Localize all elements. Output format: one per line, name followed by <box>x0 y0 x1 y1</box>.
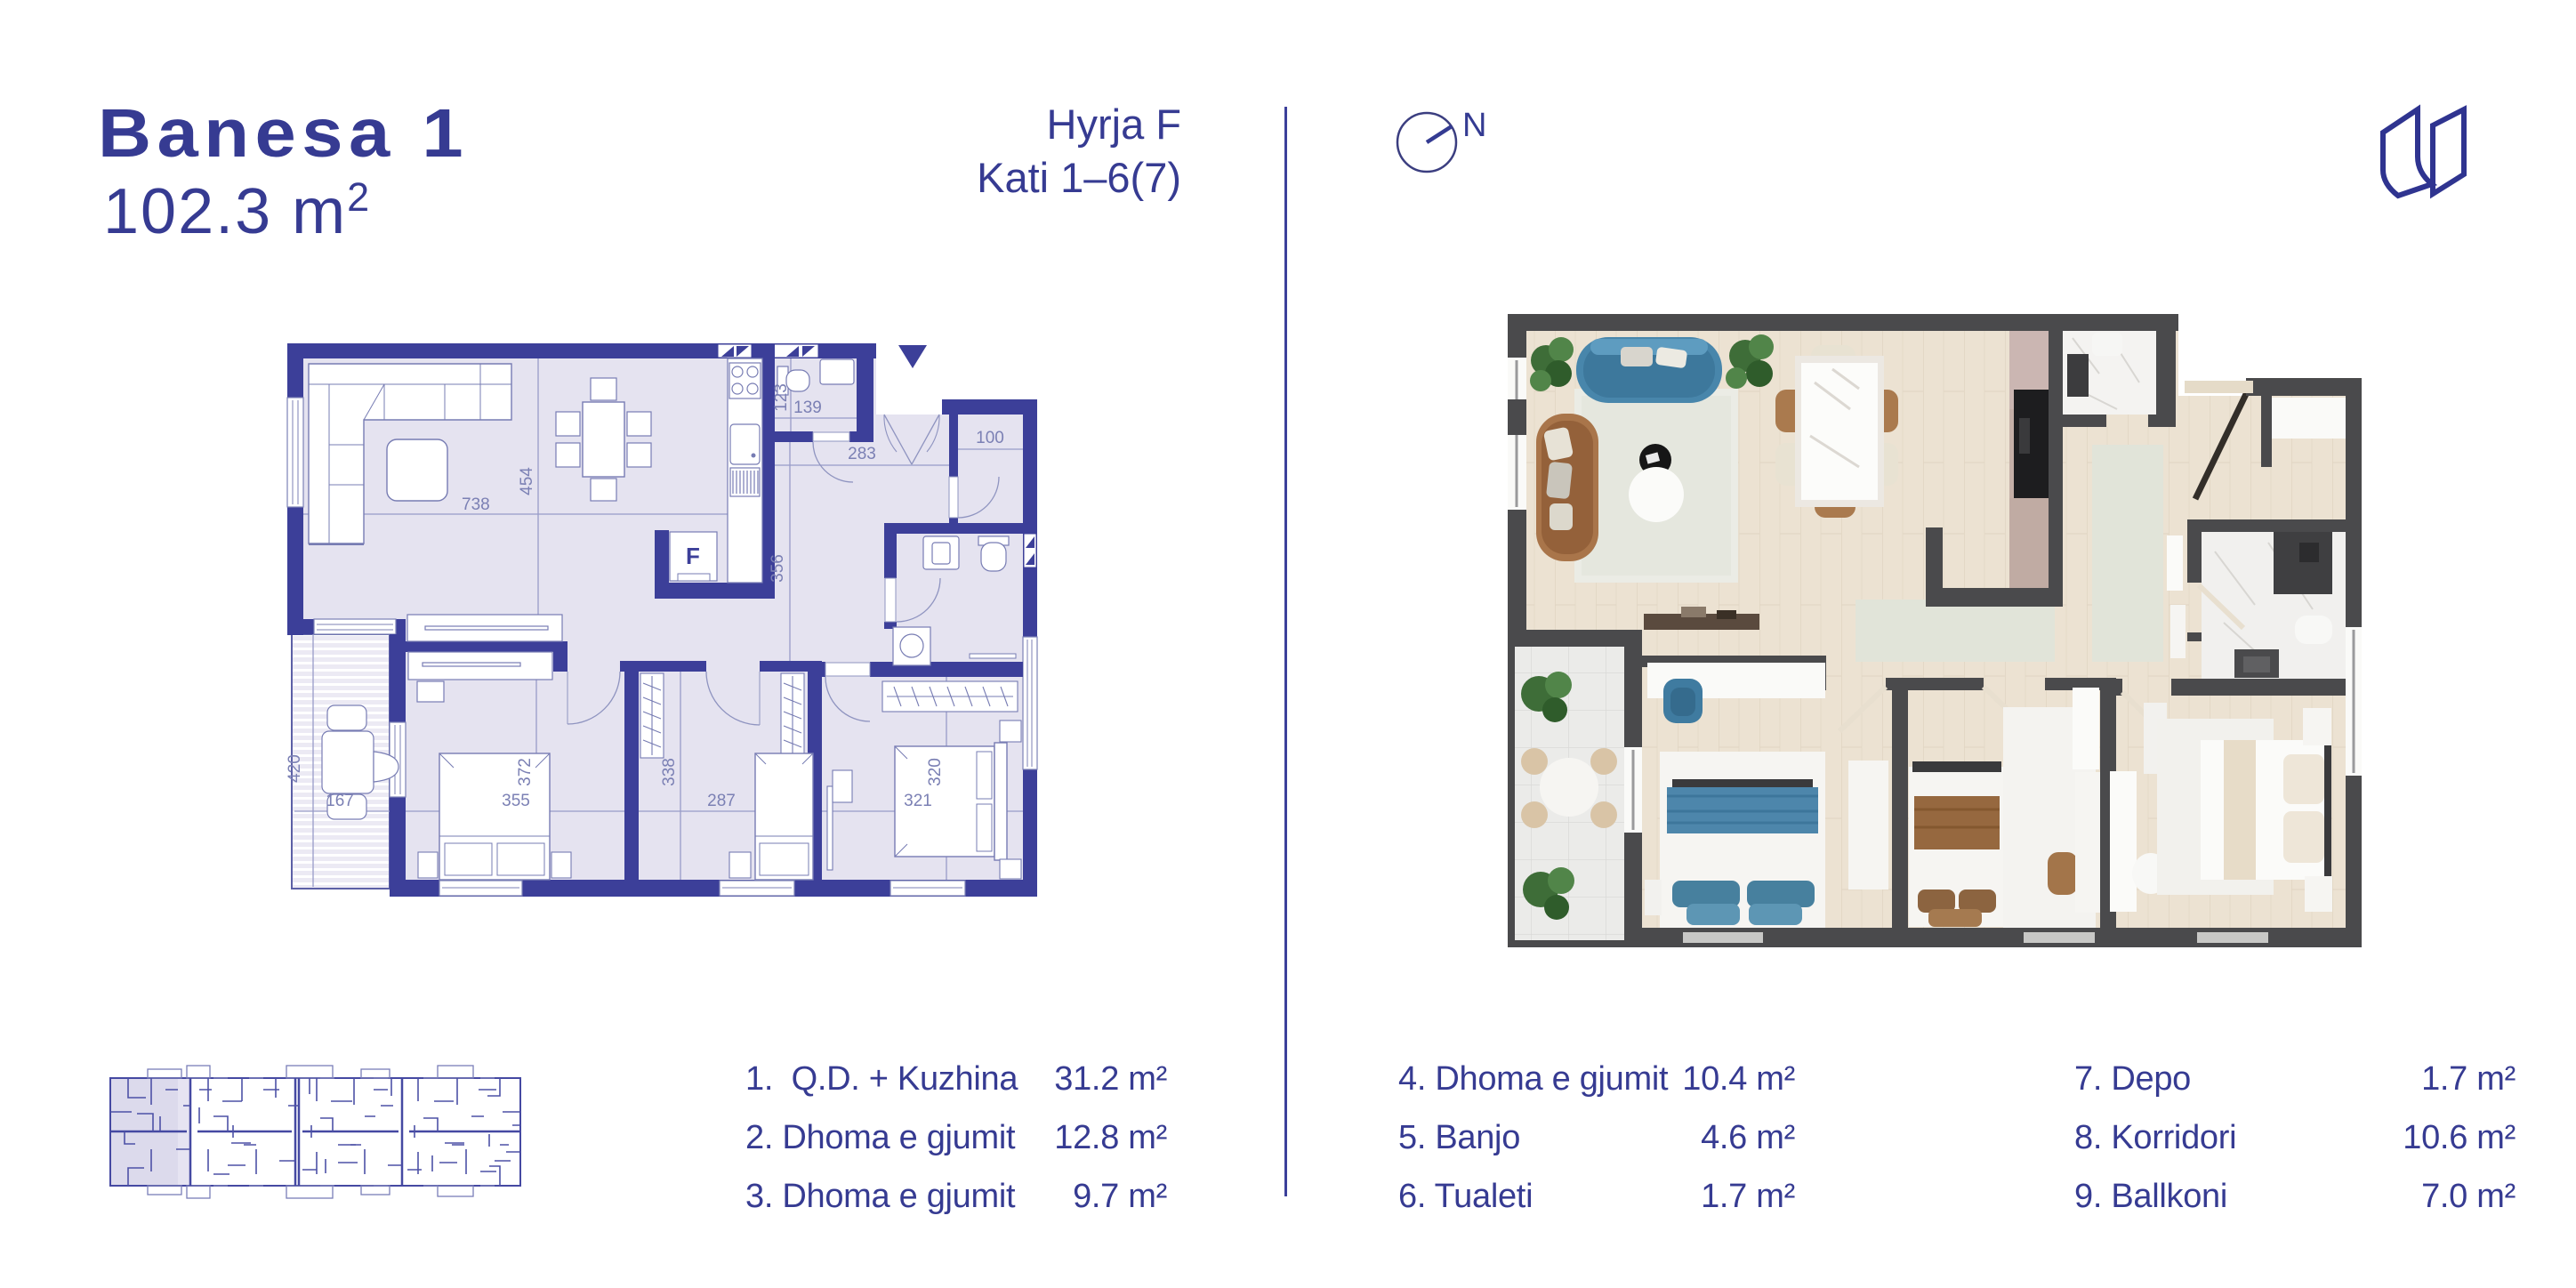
svg-text:320: 320 <box>926 758 945 786</box>
svg-text:372: 372 <box>516 758 535 786</box>
svg-text:420: 420 <box>286 754 304 783</box>
svg-text:321: 321 <box>904 792 932 810</box>
svg-text:287: 287 <box>707 792 736 810</box>
svg-text:283: 283 <box>848 445 876 463</box>
svg-text:454: 454 <box>518 467 536 495</box>
svg-text:356: 356 <box>769 554 787 583</box>
svg-text:100: 100 <box>976 429 1004 447</box>
svg-text:355: 355 <box>502 792 530 810</box>
svg-text:N: N <box>1462 107 1486 144</box>
svg-text:123: 123 <box>772 383 791 412</box>
svg-text:139: 139 <box>793 398 822 417</box>
svg-text:338: 338 <box>660 758 679 786</box>
svg-text:738: 738 <box>462 495 490 514</box>
svg-text:F: F <box>686 543 700 569</box>
svg-text:167: 167 <box>326 792 354 810</box>
